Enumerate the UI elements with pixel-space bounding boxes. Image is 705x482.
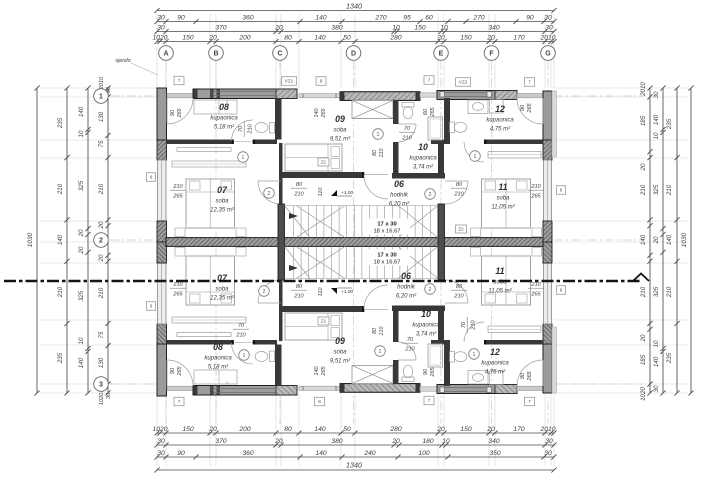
svg-text:200: 200 xyxy=(238,35,250,42)
svg-text:50: 50 xyxy=(343,426,351,433)
svg-text:100: 100 xyxy=(418,450,429,457)
svg-text:20: 20 xyxy=(640,163,647,171)
svg-text:8: 8 xyxy=(318,399,321,404)
svg-text:17 x 30: 17 x 30 xyxy=(377,222,396,228)
svg-text:2: 2 xyxy=(263,289,266,295)
svg-text:09: 09 xyxy=(335,336,345,346)
svg-text:60: 60 xyxy=(423,108,429,115)
svg-text:90: 90 xyxy=(520,104,526,111)
svg-text:140: 140 xyxy=(314,426,325,433)
svg-text:210: 210 xyxy=(666,286,673,298)
svg-text:1020: 1020 xyxy=(153,426,168,433)
svg-text:06: 06 xyxy=(394,179,404,189)
svg-text:kupaonica: kupaonica xyxy=(210,116,238,122)
svg-text:10: 10 xyxy=(78,337,85,344)
svg-text:110: 110 xyxy=(318,187,324,197)
svg-text:20: 20 xyxy=(78,246,85,254)
svg-text:265: 265 xyxy=(530,292,541,298)
svg-text:75: 75 xyxy=(98,140,105,147)
svg-text:2: 2 xyxy=(429,287,432,293)
svg-text:kupaonica: kupaonica xyxy=(486,118,514,124)
svg-text:soba: soba xyxy=(215,199,229,205)
svg-text:240: 240 xyxy=(363,450,375,457)
svg-text:1: 1 xyxy=(242,155,245,161)
svg-text:3,74 m²: 3,74 m² xyxy=(416,332,437,338)
svg-text:11,05 m²: 11,05 m² xyxy=(488,289,512,295)
svg-text:12,35 m²: 12,35 m² xyxy=(210,208,235,214)
svg-text:30: 30 xyxy=(653,385,660,392)
svg-text:7: 7 xyxy=(178,399,181,404)
svg-text:265: 265 xyxy=(172,194,183,200)
svg-text:70: 70 xyxy=(238,323,245,329)
svg-text:150: 150 xyxy=(414,25,425,32)
svg-text:1: 1 xyxy=(99,94,103,101)
svg-text:+1,00: +1,00 xyxy=(341,190,353,196)
svg-text:2010: 2010 xyxy=(640,82,647,97)
svg-text:6: 6 xyxy=(560,188,563,193)
svg-text:7: 7 xyxy=(428,78,431,83)
svg-text:12: 12 xyxy=(495,104,505,114)
svg-text:2010: 2010 xyxy=(99,76,105,90)
svg-text:Z2: Z2 xyxy=(458,227,464,232)
svg-text:170: 170 xyxy=(513,426,524,433)
svg-text:1: 1 xyxy=(379,349,382,355)
svg-text:140: 140 xyxy=(314,107,320,117)
svg-text:1: 1 xyxy=(243,353,246,359)
svg-text:7: 7 xyxy=(178,78,181,83)
svg-text:235: 235 xyxy=(57,117,64,129)
svg-text:140: 140 xyxy=(314,35,325,42)
svg-text:265: 265 xyxy=(530,194,541,200)
svg-text:10: 10 xyxy=(653,132,660,139)
svg-text:360: 360 xyxy=(242,450,253,457)
svg-text:235: 235 xyxy=(666,118,673,130)
svg-text:20: 20 xyxy=(653,236,660,244)
svg-text:90: 90 xyxy=(177,450,185,457)
svg-text:30: 30 xyxy=(653,91,660,98)
svg-text:10: 10 xyxy=(421,309,431,319)
svg-text:9,51 m²: 9,51 m² xyxy=(330,137,351,143)
svg-text:6: 6 xyxy=(150,304,153,309)
svg-text:06: 06 xyxy=(401,271,411,281)
svg-text:2: 2 xyxy=(99,238,103,245)
svg-text:140: 140 xyxy=(314,365,320,375)
svg-text:80: 80 xyxy=(456,284,463,290)
svg-text:07: 07 xyxy=(217,185,228,195)
svg-text:1: 1 xyxy=(474,154,477,160)
svg-text:2: 2 xyxy=(268,191,271,197)
svg-text:210: 210 xyxy=(172,184,183,190)
svg-text:kupaonica: kupaonica xyxy=(204,356,232,362)
svg-text:kupaonica: kupaonica xyxy=(409,156,437,162)
svg-text:80: 80 xyxy=(296,182,303,188)
svg-text:09: 09 xyxy=(335,114,345,124)
svg-text:70: 70 xyxy=(404,126,411,132)
svg-text:18 x 16,67: 18 x 16,67 xyxy=(373,260,400,266)
svg-text:1020: 1020 xyxy=(99,392,105,405)
svg-text:130: 130 xyxy=(98,357,105,368)
svg-text:7: 7 xyxy=(528,80,531,85)
svg-text:75: 75 xyxy=(98,331,105,338)
svg-text:185: 185 xyxy=(640,115,647,126)
svg-text:1030: 1030 xyxy=(27,232,34,247)
svg-text:4,75 m²: 4,75 m² xyxy=(490,127,511,133)
svg-text:20: 20 xyxy=(78,229,85,237)
svg-text:140: 140 xyxy=(653,114,660,125)
svg-text:50: 50 xyxy=(343,35,351,42)
svg-text:10: 10 xyxy=(418,142,428,152)
svg-text:20: 20 xyxy=(436,35,445,42)
svg-text:6,20 m²: 6,20 m² xyxy=(396,294,417,300)
svg-text:2010: 2010 xyxy=(540,35,556,42)
svg-text:210: 210 xyxy=(666,184,673,196)
svg-text:6: 6 xyxy=(560,288,563,293)
svg-text:11,05 m²: 11,05 m² xyxy=(491,205,515,211)
svg-text:7: 7 xyxy=(528,399,531,404)
svg-text:08: 08 xyxy=(213,342,223,352)
svg-text:10: 10 xyxy=(653,340,660,347)
svg-text:10: 10 xyxy=(392,25,400,32)
svg-text:140: 140 xyxy=(653,356,660,367)
svg-text:C: C xyxy=(277,51,282,58)
svg-text:6,20 m²: 6,20 m² xyxy=(389,202,410,208)
svg-text:210: 210 xyxy=(379,149,385,159)
svg-text:80: 80 xyxy=(284,426,292,433)
svg-text:Z1: Z1 xyxy=(321,160,327,165)
svg-text:265: 265 xyxy=(321,365,327,376)
svg-text:210: 210 xyxy=(293,294,304,300)
svg-text:20: 20 xyxy=(208,426,217,433)
svg-text:265: 265 xyxy=(172,292,183,298)
svg-text:110: 110 xyxy=(318,287,324,297)
svg-text:5,18 m²: 5,18 m² xyxy=(214,125,235,131)
svg-text:1: 1 xyxy=(473,352,476,358)
svg-text:90: 90 xyxy=(170,109,176,116)
svg-text:170: 170 xyxy=(513,35,524,42)
svg-text:140: 140 xyxy=(315,450,326,457)
svg-text:370: 370 xyxy=(215,25,226,32)
svg-text:80: 80 xyxy=(372,150,378,156)
svg-text:20: 20 xyxy=(98,221,105,229)
svg-text:325: 325 xyxy=(78,180,85,191)
svg-text:VZ2: VZ2 xyxy=(459,80,468,85)
svg-text:+1,00: +1,00 xyxy=(341,289,353,295)
svg-text:5,18 m²: 5,18 m² xyxy=(208,365,229,371)
svg-text:210: 210 xyxy=(530,184,541,190)
svg-text:7: 7 xyxy=(428,398,431,403)
svg-text:280: 280 xyxy=(389,35,401,42)
svg-text:80: 80 xyxy=(456,182,463,188)
svg-text:210: 210 xyxy=(235,333,246,339)
svg-text:340: 340 xyxy=(488,438,499,445)
svg-text:3: 3 xyxy=(99,382,103,389)
svg-text:70: 70 xyxy=(461,321,467,328)
svg-text:2: 2 xyxy=(429,192,432,198)
svg-text:90: 90 xyxy=(177,15,185,22)
svg-text:soba: soba xyxy=(333,350,347,356)
svg-text:hodnik: hodnik xyxy=(397,285,416,291)
svg-text:210: 210 xyxy=(453,192,464,198)
svg-text:130: 130 xyxy=(98,111,105,122)
svg-text:325: 325 xyxy=(78,290,85,301)
svg-text:1020: 1020 xyxy=(640,387,647,401)
svg-text:325: 325 xyxy=(653,286,660,297)
svg-text:265: 265 xyxy=(177,107,183,118)
svg-text:340: 340 xyxy=(488,25,499,32)
svg-text:20: 20 xyxy=(436,426,445,433)
svg-text:soba: soba xyxy=(215,287,229,293)
svg-text:210: 210 xyxy=(471,319,477,330)
svg-text:265: 265 xyxy=(527,102,533,113)
svg-text:95: 95 xyxy=(403,15,411,22)
svg-text:soba: soba xyxy=(496,196,510,202)
svg-text:3,74 m²: 3,74 m² xyxy=(413,165,434,171)
svg-text:kupaonica: kupaonica xyxy=(412,323,440,329)
svg-text:sjenilo: sjenilo xyxy=(115,58,130,64)
svg-text:210: 210 xyxy=(98,287,105,299)
svg-text:200: 200 xyxy=(238,426,250,433)
svg-text:185: 185 xyxy=(640,354,647,365)
svg-text:140: 140 xyxy=(78,357,85,368)
svg-text:210: 210 xyxy=(248,123,254,134)
svg-text:12: 12 xyxy=(490,347,500,357)
svg-text:150: 150 xyxy=(460,426,471,433)
svg-text:Z1: Z1 xyxy=(321,319,327,324)
svg-text:A: A xyxy=(163,51,168,58)
svg-text:150: 150 xyxy=(182,426,193,433)
svg-text:11: 11 xyxy=(495,266,504,276)
svg-text:6: 6 xyxy=(150,175,153,180)
svg-text:350: 350 xyxy=(489,450,500,457)
svg-text:30: 30 xyxy=(106,392,112,399)
svg-text:E: E xyxy=(439,51,444,58)
svg-text:90: 90 xyxy=(423,368,429,375)
svg-text:8: 8 xyxy=(320,79,323,84)
svg-text:265: 265 xyxy=(177,365,183,376)
svg-text:G: G xyxy=(545,51,551,58)
svg-text:hodnik: hodnik xyxy=(390,193,409,199)
svg-text:20: 20 xyxy=(208,35,217,42)
svg-text:210: 210 xyxy=(401,136,412,142)
svg-text:140: 140 xyxy=(78,106,85,117)
svg-text:325: 325 xyxy=(653,184,660,195)
svg-text:90: 90 xyxy=(526,15,534,22)
svg-text:kupaonica: kupaonica xyxy=(481,361,509,367)
svg-text:80: 80 xyxy=(296,284,303,290)
svg-text:180: 180 xyxy=(422,438,433,445)
svg-text:2010: 2010 xyxy=(540,426,556,433)
svg-text:280: 280 xyxy=(389,426,401,433)
svg-text:90: 90 xyxy=(520,372,526,379)
svg-text:140: 140 xyxy=(666,234,673,245)
svg-text:210: 210 xyxy=(293,192,304,198)
svg-text:1: 1 xyxy=(377,132,380,138)
svg-text:80: 80 xyxy=(372,328,378,334)
svg-text:265: 265 xyxy=(430,366,436,377)
svg-text:B: B xyxy=(213,51,218,58)
svg-text:80: 80 xyxy=(284,35,292,42)
svg-text:70: 70 xyxy=(407,337,414,343)
svg-text:210: 210 xyxy=(57,183,64,195)
svg-text:08: 08 xyxy=(219,102,229,112)
svg-text:380: 380 xyxy=(331,25,342,32)
svg-text:1020: 1020 xyxy=(153,35,168,42)
svg-text:17 x 30: 17 x 30 xyxy=(377,253,396,259)
svg-text:210: 210 xyxy=(453,294,464,300)
svg-text:20: 20 xyxy=(98,254,105,262)
svg-text:1340: 1340 xyxy=(346,461,362,470)
svg-text:4,76 m²: 4,76 m² xyxy=(485,370,506,376)
svg-text:210: 210 xyxy=(57,286,64,298)
svg-text:140: 140 xyxy=(57,234,64,245)
svg-text:265: 265 xyxy=(321,107,327,118)
svg-text:360: 360 xyxy=(242,15,253,22)
svg-text:380: 380 xyxy=(331,438,342,445)
svg-text:soba: soba xyxy=(333,128,347,134)
svg-text:90: 90 xyxy=(170,367,176,374)
svg-text:18 x 16,67: 18 x 16,67 xyxy=(373,229,400,235)
svg-text:210: 210 xyxy=(640,286,647,298)
svg-text:140: 140 xyxy=(640,234,647,245)
svg-text:210: 210 xyxy=(98,183,105,195)
svg-text:270: 270 xyxy=(374,15,386,22)
svg-text:12,35 m²: 12,35 m² xyxy=(210,296,235,302)
svg-text:235: 235 xyxy=(666,352,673,364)
svg-text:210: 210 xyxy=(172,282,183,288)
svg-text:F: F xyxy=(489,51,494,58)
svg-text:10: 10 xyxy=(78,130,85,137)
svg-text:60: 60 xyxy=(425,15,433,22)
svg-text:270: 270 xyxy=(472,15,484,22)
svg-text:11: 11 xyxy=(498,182,507,192)
svg-text:150: 150 xyxy=(460,35,471,42)
svg-text:235: 235 xyxy=(57,352,64,364)
svg-text:140: 140 xyxy=(315,15,326,22)
svg-text:265: 265 xyxy=(527,370,533,381)
svg-text:150: 150 xyxy=(182,35,193,42)
svg-text:370: 370 xyxy=(215,438,226,445)
svg-text:210: 210 xyxy=(404,347,415,353)
svg-text:265: 265 xyxy=(430,106,436,117)
svg-text:20: 20 xyxy=(640,334,647,342)
svg-text:70: 70 xyxy=(238,125,244,132)
svg-text:D: D xyxy=(351,51,356,58)
svg-text:210: 210 xyxy=(640,184,647,196)
svg-text:210: 210 xyxy=(379,327,385,337)
svg-text:1340: 1340 xyxy=(346,2,362,11)
svg-text:9,51 m²: 9,51 m² xyxy=(330,359,351,365)
svg-text:210: 210 xyxy=(530,282,541,288)
svg-text:1030: 1030 xyxy=(681,232,688,247)
svg-text:VZ1: VZ1 xyxy=(285,79,294,84)
